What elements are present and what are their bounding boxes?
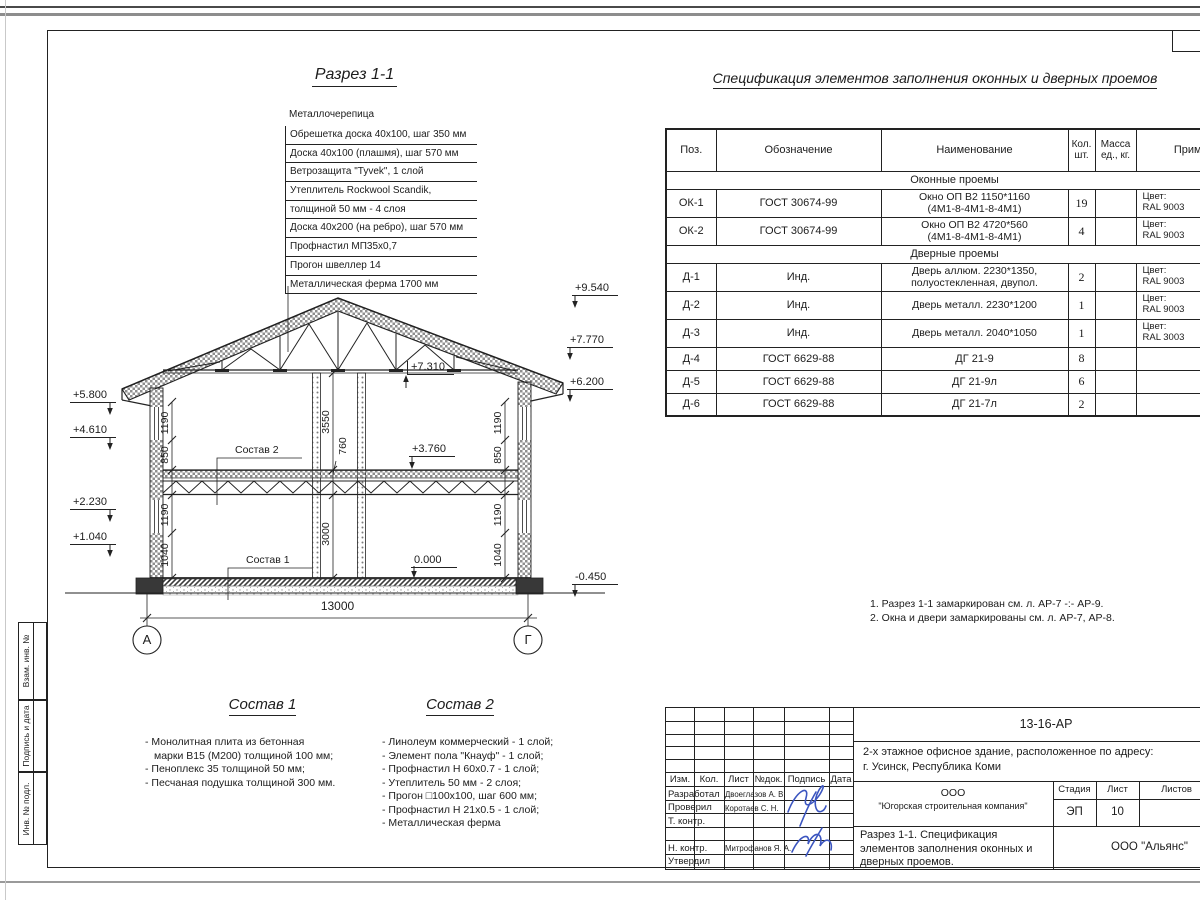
tb-sheet-title-line: Разрез 1-1. Спецификация bbox=[860, 829, 1032, 843]
spec-row: Д-2 Инд. Дверь металл. 2230*1200 1 Цвет:… bbox=[666, 291, 1200, 319]
sostav2-list: - Линолеум коммерческий - 1 слой; - Элем… bbox=[382, 736, 553, 831]
comp-line: - Профнастил Н 60х0.7 - 1 слой; bbox=[382, 763, 553, 777]
sostav1-list: - Монолитная плита из бетонная марки В15… bbox=[145, 736, 335, 790]
dim-label: 1040 bbox=[159, 525, 171, 585]
tb-role: Н. контр. bbox=[668, 843, 707, 854]
margin-label: Взам. инв. № bbox=[19, 623, 34, 699]
cell-qty: 6 bbox=[1068, 370, 1095, 393]
cell-designation: Инд. bbox=[716, 319, 881, 347]
tb-name: Митрофанов Я. А. bbox=[725, 844, 783, 853]
comp-line: - Металлическая ферма bbox=[382, 817, 553, 831]
spec-section-row: Оконные проемы bbox=[666, 171, 1200, 189]
tb-col-podpis: Подпись bbox=[784, 774, 829, 785]
cell-mass bbox=[1095, 319, 1136, 347]
corner-stamp-box bbox=[1172, 30, 1200, 52]
cell-qty: 19 bbox=[1068, 189, 1095, 217]
section-title: Разрез 1-1 bbox=[312, 66, 397, 87]
col-note: Прим. bbox=[1136, 129, 1200, 171]
comp-line: - Утеплитель 50 мм - 2 слоя; bbox=[382, 777, 553, 791]
section-windows: Оконные проемы bbox=[666, 171, 1200, 189]
spec-row: Д-6 ГОСТ 6629-88 ДГ 21-7л 2 bbox=[666, 393, 1200, 416]
paper-edge-left bbox=[5, 0, 6, 900]
comp-line: - Монолитная плита из бетонная bbox=[145, 736, 335, 750]
elevation-mark: +6.200 bbox=[567, 376, 613, 390]
dim-label: 850 bbox=[159, 425, 171, 485]
margin-label: Инв. № подл. bbox=[19, 773, 34, 844]
col-designation: Обозначение bbox=[716, 129, 881, 171]
cell-mass bbox=[1095, 263, 1136, 291]
tb-col-data: Дата bbox=[829, 774, 853, 785]
spec-table: Поз. Обозначение Наименование Кол.шт. Ма… bbox=[665, 128, 1200, 417]
dim-label: 3000 bbox=[320, 504, 332, 564]
spec-row: ОК-1 ГОСТ 30674-99 Окно ОП В2 1150*1160(… bbox=[666, 189, 1200, 217]
elevation-mark: +5.800 bbox=[70, 389, 116, 403]
tb-doc-number: 13-16-АР bbox=[856, 717, 1200, 731]
cell-pos: Д-5 bbox=[666, 370, 716, 393]
comp-line: - Песчаная подушка толщиной 300 мм. bbox=[145, 777, 335, 791]
tb-project-line2: г. Усинск, Республика Коми bbox=[863, 761, 1001, 773]
sostav2-heading-text: Состав 2 bbox=[426, 696, 494, 716]
cell-name: ДГ 21-9 bbox=[881, 347, 1068, 370]
cell-name: ДГ 21-9л bbox=[881, 370, 1068, 393]
cell-qty: 1 bbox=[1068, 291, 1095, 319]
comp-line: - Профнастил Н 21х0.5 - 1 слой; bbox=[382, 804, 553, 818]
axis-label-g: Г bbox=[514, 632, 542, 647]
comp-line: - Пеноплекс 35 толщиной 50 мм; bbox=[145, 763, 335, 777]
cell-note: Цвет:RAL 9003 bbox=[1136, 291, 1200, 319]
cell-name: Окно ОП В2 4720*560(4М1-8-4М1-8-4М1) bbox=[881, 217, 1068, 245]
cell-name: ДГ 21-7л bbox=[881, 393, 1068, 416]
tb-contractor: ООО "Альянс" bbox=[1053, 841, 1200, 853]
cell-mass bbox=[1095, 370, 1136, 393]
axis-label-a: А bbox=[133, 632, 161, 647]
cell-mass bbox=[1095, 393, 1136, 416]
elevation-mark: +7.770 bbox=[567, 334, 613, 348]
section-doors: Дверные проемы bbox=[666, 245, 1200, 263]
cell-designation: ГОСТ 6629-88 bbox=[716, 393, 881, 416]
tb-sheet-label: Лист bbox=[1096, 784, 1139, 795]
cell-designation: Инд. bbox=[716, 263, 881, 291]
cell-designation: ГОСТ 30674-99 bbox=[716, 217, 881, 245]
callout-item: Обрешетка доска 40х100, шаг 350 мм bbox=[286, 126, 477, 145]
col-pos: Поз. bbox=[666, 129, 716, 171]
callout-item: Профнастил МП35х0,7 bbox=[286, 238, 477, 257]
sostav1-heading-text: Состав 1 bbox=[229, 696, 297, 716]
callout-item: Прогон швеллер 14 bbox=[286, 257, 477, 276]
tb-name: Двоеглазов А. В. bbox=[725, 790, 783, 799]
elevation-mark: +7.310 bbox=[407, 361, 454, 375]
spec-row: Д-3 Инд. Дверь металл. 2040*1050 1 Цвет:… bbox=[666, 319, 1200, 347]
comp-line: - Элемент пола "Кнауф" - 1 слой; bbox=[382, 750, 553, 764]
spec-row: Д-1 Инд. Дверь аллюм. 2230*1350,полуосте… bbox=[666, 263, 1200, 291]
spec-row: Д-4 ГОСТ 6629-88 ДГ 21-9 8 bbox=[666, 347, 1200, 370]
cell-note: Цвет:RAL 9003 bbox=[1136, 189, 1200, 217]
tb-sheet-title-line: элементов заполнения оконных и bbox=[860, 843, 1032, 857]
cell-mass bbox=[1095, 189, 1136, 217]
spec-section-row: Дверные проемы bbox=[666, 245, 1200, 263]
cell-pos: Д-4 bbox=[666, 347, 716, 370]
elevation-mark: +4.610 bbox=[70, 424, 116, 438]
spec-row: ОК-2 ГОСТ 30674-99 Окно ОП В2 4720*560(4… bbox=[666, 217, 1200, 245]
tb-stage-value: ЭП bbox=[1053, 806, 1096, 818]
spec-title: Спецификация элементов заполнения оконны… bbox=[675, 70, 1195, 86]
tb-stage-label: Стадия bbox=[1053, 784, 1096, 795]
cell-note bbox=[1136, 370, 1200, 393]
tb-col-kol: Кол. bbox=[694, 774, 724, 785]
cell-mass bbox=[1095, 291, 1136, 319]
cell-pos: Д-6 bbox=[666, 393, 716, 416]
tb-role: Разработал bbox=[668, 789, 720, 800]
sostav1-heading: Состав 1 bbox=[200, 696, 325, 713]
cell-note bbox=[1136, 347, 1200, 370]
cell-note bbox=[1136, 393, 1200, 416]
drawing-sheet: Взам. инв. № Подпись и дата Инв. № подл. bbox=[0, 0, 1200, 900]
tb-sheet-title-line: дверных проемов. bbox=[860, 856, 1032, 870]
callout-item: Доска 40х200 (на ребро), шаг 570 мм bbox=[286, 219, 477, 238]
paper-edge-bottom bbox=[0, 881, 1200, 883]
margin-label: Подпись и дата bbox=[19, 701, 34, 771]
cell-name: Дверь металл. 2040*1050 bbox=[881, 319, 1068, 347]
cell-mass bbox=[1095, 347, 1136, 370]
tb-name: Коротаев С. Н. bbox=[725, 804, 783, 813]
tb-sheets-label: Листов bbox=[1139, 784, 1200, 795]
sostav1-leader-label: Состав 1 bbox=[246, 554, 290, 566]
comp-line: марки В15 (М200) толщиной 100 мм; bbox=[145, 750, 335, 764]
cell-designation: ГОСТ 6629-88 bbox=[716, 347, 881, 370]
title-block: Изм. Кол. Лист №док. Подпись Дата Разраб… bbox=[665, 707, 1200, 870]
tb-project-line1: 2-х этажное офисное здание, расположенно… bbox=[863, 746, 1153, 758]
elevation-mark: +2.230 bbox=[70, 496, 116, 510]
note-line: 2. Окна и двери замаркированы см. л. АР-… bbox=[870, 611, 1115, 625]
callout-item: Утеплитель Rockwool Scandik, bbox=[286, 182, 477, 201]
elevation-mark: -0.450 bbox=[572, 571, 618, 585]
tb-company-line2: "Югорская строительная компания" bbox=[856, 801, 1050, 811]
cell-designation: Инд. bbox=[716, 291, 881, 319]
col-qty: Кол.шт. bbox=[1068, 129, 1095, 171]
spec-header-row: Поз. Обозначение Наименование Кол.шт. Ма… bbox=[666, 129, 1200, 171]
callout-item: Ветрозащита "Tyvek", 1 слой bbox=[286, 163, 477, 182]
callout-item: толщиной 50 мм - 4 слоя bbox=[286, 201, 477, 220]
tb-sheet-title: Разрез 1-1. Спецификация элементов запол… bbox=[860, 829, 1032, 870]
dim-label: 1040 bbox=[492, 525, 504, 585]
elevation-mark: +3.760 bbox=[409, 443, 455, 457]
dim-label: 850 bbox=[492, 425, 504, 485]
roof-callout: Металлочерепица Обрешетка доска 40х100, … bbox=[285, 109, 477, 294]
paper-edge-top bbox=[0, 6, 1200, 8]
note-line: 1. Разрез 1-1 замаркирован см. л. АР-7 -… bbox=[870, 597, 1115, 611]
cell-pos: Д-1 bbox=[666, 263, 716, 291]
spec-title-text: Спецификация элементов заполнения оконны… bbox=[713, 70, 1158, 89]
cell-qty: 4 bbox=[1068, 217, 1095, 245]
tb-col-list: Лист bbox=[724, 774, 753, 785]
cell-note: Цвет:RAL 3003 bbox=[1136, 319, 1200, 347]
spec-row: Д-5 ГОСТ 6629-88 ДГ 21-9л 6 bbox=[666, 370, 1200, 393]
sostav2-heading: Состав 2 bbox=[395, 696, 525, 713]
cell-name: Дверь аллюм. 2230*1350,полуостекленная, … bbox=[881, 263, 1068, 291]
elevation-mark: +9.540 bbox=[572, 282, 618, 296]
col-mass: Массаед., кг. bbox=[1095, 129, 1136, 171]
cell-note: Цвет:RAL 9003 bbox=[1136, 217, 1200, 245]
paper-edge-top2 bbox=[0, 13, 1200, 16]
cell-qty: 2 bbox=[1068, 393, 1095, 416]
callout-top-label: Металлочерепица bbox=[285, 109, 477, 126]
callout-item: Доска 40х100 (плашмя), шаг 570 мм bbox=[286, 145, 477, 164]
tb-company-line1: ООО bbox=[856, 787, 1050, 799]
cell-pos: Д-3 bbox=[666, 319, 716, 347]
cell-designation: ГОСТ 30674-99 bbox=[716, 189, 881, 217]
cell-pos: Д-2 bbox=[666, 291, 716, 319]
tb-col-izm: Изм. bbox=[666, 774, 694, 785]
tb-role: Утвердил bbox=[668, 856, 710, 867]
cell-pos: ОК-1 bbox=[666, 189, 716, 217]
cell-note: Цвет:RAL 9003 bbox=[1136, 263, 1200, 291]
comp-line: - Линолеум коммерческий - 1 слой; bbox=[382, 736, 553, 750]
cell-designation: ГОСТ 6629-88 bbox=[716, 370, 881, 393]
dim-label-width: 13000 bbox=[300, 599, 375, 613]
margin-box-podpis: Подпись и дата bbox=[18, 700, 47, 772]
drawing-notes: 1. Разрез 1-1 замаркирован см. л. АР-7 -… bbox=[870, 597, 1115, 625]
col-name: Наименование bbox=[881, 129, 1068, 171]
dim-label: 760 bbox=[337, 416, 349, 476]
tb-role: Проверил bbox=[668, 802, 712, 813]
margin-box-inv: Инв. № подл. bbox=[18, 772, 47, 845]
cell-qty: 2 bbox=[1068, 263, 1095, 291]
cell-qty: 8 bbox=[1068, 347, 1095, 370]
cell-mass bbox=[1095, 217, 1136, 245]
cell-name: Дверь металл. 2230*1200 bbox=[881, 291, 1068, 319]
tb-col-ndok: №док. bbox=[753, 774, 784, 785]
callout-item: Металлическая ферма 1700 мм bbox=[286, 276, 477, 295]
cell-qty: 1 bbox=[1068, 319, 1095, 347]
cell-pos: ОК-2 bbox=[666, 217, 716, 245]
margin-box-vzam: Взам. инв. № bbox=[18, 622, 47, 700]
elevation-mark: 0.000 bbox=[411, 554, 457, 568]
dim-label: 3550 bbox=[320, 392, 332, 452]
sostav2-leader-label: Состав 2 bbox=[235, 444, 279, 456]
cell-name: Окно ОП В2 1150*1160(4М1-8-4М1-8-4М1) bbox=[881, 189, 1068, 217]
elevation-mark: +1.040 bbox=[70, 531, 116, 545]
comp-line: - Прогон □100х100, шаг 600 мм; bbox=[382, 790, 553, 804]
tb-role: Т. контр. bbox=[668, 816, 705, 827]
tb-sheet-value: 10 bbox=[1096, 806, 1139, 818]
